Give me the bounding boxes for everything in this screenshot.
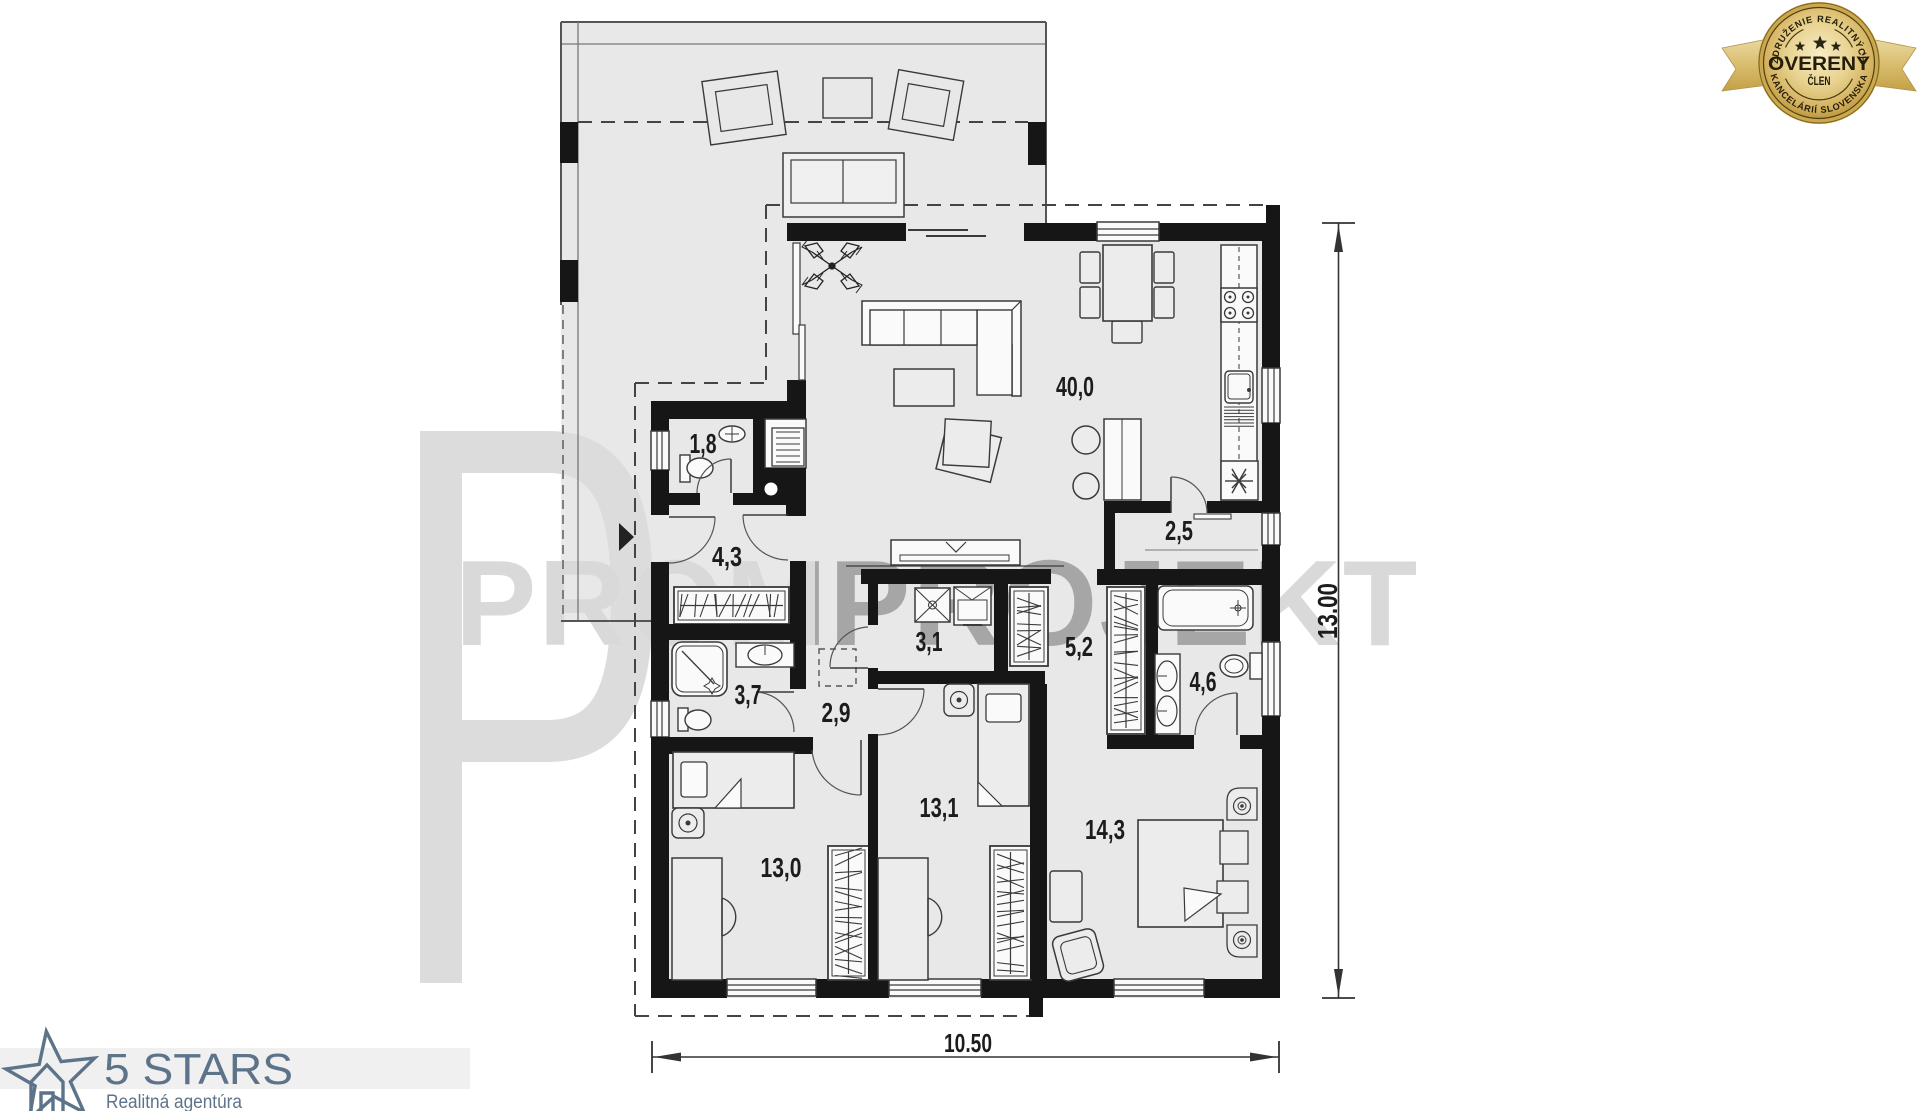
- svg-text:2,9: 2,9: [822, 697, 851, 728]
- svg-text:4,6: 4,6: [1190, 666, 1217, 697]
- svg-text:13,0: 13,0: [761, 852, 802, 883]
- svg-text:14,3: 14,3: [1085, 814, 1125, 845]
- svg-text:13.00: 13.00: [1312, 583, 1343, 639]
- svg-text:1,8: 1,8: [690, 428, 717, 459]
- svg-text:13,1: 13,1: [920, 792, 959, 823]
- svg-text:4,3: 4,3: [712, 541, 742, 572]
- svg-text:5 STARS: 5 STARS: [104, 1045, 293, 1094]
- svg-text:3,7: 3,7: [735, 679, 762, 710]
- svg-text:ČLEN: ČLEN: [1808, 73, 1831, 88]
- svg-text:3,1: 3,1: [916, 626, 943, 657]
- svg-text:Realitná agentúra: Realitná agentúra: [106, 1092, 242, 1111]
- svg-text:2,5: 2,5: [1165, 515, 1193, 546]
- svg-text:OVERENÝ: OVERENÝ: [1768, 51, 1870, 75]
- svg-text:5,2: 5,2: [1065, 631, 1093, 662]
- svg-text:10.50: 10.50: [944, 1028, 992, 1058]
- svg-text:40,0: 40,0: [1056, 371, 1094, 402]
